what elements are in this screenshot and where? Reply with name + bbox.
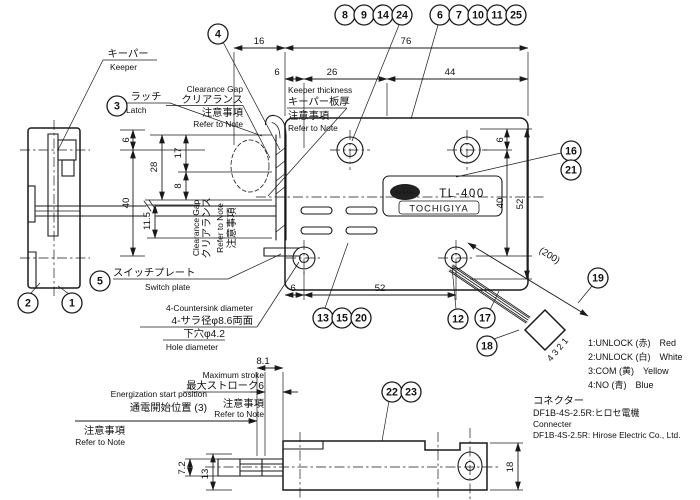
balloon-3: 3 — [107, 96, 127, 116]
balloon-13-label: 13 — [317, 313, 329, 325]
switch-plate-en: Switch plate — [145, 282, 190, 292]
dim-16: 16 — [254, 36, 265, 47]
balloon-16: 16 — [561, 141, 581, 161]
balloon-24-label: 24 — [396, 10, 408, 22]
balloon-6-label: 6 — [437, 10, 443, 22]
slots — [301, 207, 377, 234]
nameplate: TOCHIGIYA TL-400 TOCHIGIYA — [383, 176, 502, 216]
keeper-thickness-note: Keeper thickness キーパー板厚 注意事項 Refer to No… — [268, 85, 352, 196]
pilot-hole-jp: 下穴φ4.2 — [183, 327, 225, 340]
balloon-4-label: 4 — [215, 29, 221, 41]
clearance-note-jp: 注意事項 — [202, 106, 244, 119]
clearance-gap-vertical-jp: クリアランス — [201, 197, 213, 259]
balloon-14: 14 — [373, 5, 393, 25]
wire-3-label: 3:COM (黄) Yellow — [588, 365, 669, 376]
balloon-15-label: 15 — [336, 313, 348, 325]
balloon-18: 18 — [477, 336, 497, 356]
brand-logo-text: TOCHIGIYA — [395, 191, 415, 195]
wire-1-label: 1:UNLOCK (赤) Red — [588, 338, 676, 348]
balloon-2: 2 — [18, 293, 38, 313]
keeper-label-en: Keeper — [110, 62, 137, 72]
balloon-15: 15 — [332, 308, 352, 328]
dim-200: (200) — [537, 245, 562, 266]
clearance-note-en: Refer to Note — [193, 119, 243, 129]
balloon-8: 8 — [335, 5, 355, 25]
dim-8-1: 8.1 — [256, 356, 269, 367]
balloon-5-label: 5 — [97, 276, 103, 288]
balloon-16-label: 16 — [565, 146, 577, 158]
connector-model-jp: DF1B-4S-2.5R:ヒロセ電機 — [533, 407, 640, 418]
balloon-9-label: 9 — [361, 10, 367, 22]
drawing-page: TOCHIGIYA TL-400 TOCHIGIYA 4 3 — [0, 0, 700, 500]
countersink-jp: 4-サラ径φ8.6両面 — [171, 314, 253, 327]
energization-note-en: Refer to Note — [75, 437, 125, 447]
dim-17: 17 — [173, 148, 184, 159]
balloon-22-label: 22 — [386, 387, 398, 399]
balloon-10: 10 — [468, 5, 488, 25]
max-stroke-note-en: Refer to Note — [214, 409, 264, 419]
dim-6-right: 6 — [495, 137, 506, 142]
balloon-17: 17 — [475, 308, 495, 328]
dim-11-5: 11.5 — [142, 212, 153, 230]
balloon-14-label: 14 — [377, 10, 389, 22]
connector-note: コネクター DF1B-4S-2.5R:ヒロセ電機 Connecter DF1B-… — [533, 395, 681, 440]
balloon-13: 13 — [313, 308, 333, 328]
connector-pin-numbers: 4 3 2 1 — [545, 336, 570, 364]
balloon-20: 20 — [351, 308, 371, 328]
dim-40-right: 40 — [495, 198, 506, 209]
latch-and-keeper — [231, 115, 286, 240]
connector-en: Connecter — [533, 419, 572, 429]
balloon-5: 5 — [90, 271, 110, 291]
balloon-22: 22 — [382, 382, 402, 402]
mounting-hole-top-right — [447, 130, 487, 170]
hole-diameter-en: Hole diameter — [166, 342, 218, 352]
switch-plate-label: スイッチプレート Switch plate — [113, 254, 281, 292]
dim-18: 18 — [505, 462, 516, 473]
balloon-4: 4 — [208, 24, 228, 44]
bottom-view — [205, 428, 500, 500]
balloon-19: 19 — [588, 268, 608, 288]
connector-model-en: DF1B-4S-2.5R: Hirose Electric Co., Ltd. — [533, 430, 681, 440]
dim-13: 13 — [200, 469, 211, 480]
balloon-20-label: 20 — [355, 313, 367, 325]
note-vertical-en: Refer to Note — [215, 203, 225, 253]
balloon-21: 21 — [561, 160, 581, 180]
plunger — [218, 459, 283, 476]
keeper-label-jp: キーパー — [107, 48, 148, 60]
latch-phantom-position — [231, 140, 269, 192]
balloon-1-label: 1 — [69, 298, 75, 310]
balloon-8-label: 8 — [342, 10, 348, 22]
dim-76: 76 — [401, 36, 412, 47]
side-view — [20, 120, 90, 296]
balloon-1: 1 — [62, 293, 82, 313]
connector-jp: コネクター — [533, 395, 584, 407]
keeper-thickness-en: Keeper thickness — [288, 85, 352, 95]
wire-4-label: 4:NO (青) Blue — [588, 379, 654, 390]
balloon-9: 9 — [354, 5, 374, 25]
wire-legend: 1:UNLOCK (赤) Red 2:UNLOCK (白) White 3:CO… — [588, 338, 683, 390]
balloon-11-label: 11 — [491, 10, 502, 22]
energization-en: Energization start position — [111, 389, 208, 399]
dim-6-top: 6 — [274, 67, 279, 78]
balloon-11: 11 — [487, 5, 507, 25]
energization-note: Energization start position 通電開始位置 (3) 注… — [75, 389, 207, 447]
dim-52-bottom: 52 — [375, 283, 386, 294]
technical-drawing-canvas: TOCHIGIYA TL-400 TOCHIGIYA 4 3 — [0, 0, 700, 500]
clearance-gap-vertical-en: Clearance Gap — [191, 199, 201, 256]
wire-2-label: 2:UNLOCK (白) White — [588, 351, 683, 362]
keeper-thickness-jp: キーパー板厚 — [288, 95, 350, 108]
balloon-21-label: 21 — [565, 165, 577, 177]
dim-6-bottom: 6 — [290, 283, 295, 294]
dim-44: 44 — [445, 67, 456, 78]
dim-28: 28 — [149, 162, 160, 173]
dim-8: 8 — [173, 183, 184, 188]
dim-6-left: 6 — [121, 137, 132, 142]
dim-7-2: 7.2 — [177, 461, 188, 474]
balloon-7: 7 — [449, 5, 469, 25]
keeper-thickness-note-en: Refer to Note — [288, 123, 338, 133]
balloon-24: 24 — [392, 5, 412, 25]
clearance-gap-note-top: Clearance Gap クリアランス 注意事項 Refer to Note — [166, 84, 270, 158]
balloon-7-label: 7 — [456, 10, 462, 22]
switch-plate-jp: スイッチプレート — [113, 267, 195, 279]
latch-label-en: Latch — [126, 105, 147, 115]
dim-40-left: 40 — [121, 198, 132, 209]
clearance-gap-jp: クリアランス — [181, 94, 243, 106]
brand-name: TOCHIGIYA — [409, 204, 468, 214]
balloon-23: 23 — [401, 382, 421, 402]
latch-label-jp: ラッチ — [131, 91, 162, 103]
balloon-17-label: 17 — [479, 313, 491, 325]
keeper-plate-bar — [80, 200, 276, 216]
max-stroke-en: Maximum stroke — [203, 370, 265, 380]
balloon-25: 25 — [506, 5, 526, 25]
balloon-2-label: 2 — [25, 298, 31, 310]
balloon-6: 6 — [430, 5, 450, 25]
keeper-thickness-note-jp: 注意事項 — [288, 109, 330, 122]
balloon-12: 12 — [448, 309, 468, 329]
note-vertical-jp: 注意事項 — [225, 207, 238, 249]
balloon-25-label: 25 — [510, 10, 522, 22]
connector-plug: 4 3 2 1 — [525, 310, 570, 363]
balloon-23-label: 23 — [405, 387, 417, 399]
dim-52-right: 52 — [515, 199, 526, 210]
balloon-12-label: 12 — [452, 314, 464, 326]
dim-26: 26 — [327, 67, 338, 78]
balloon-19-label: 19 — [592, 273, 604, 285]
model-number: TL-400 — [439, 188, 484, 200]
balloon-18-label: 18 — [481, 341, 493, 353]
countersink-en: 4-Countersink diameter — [166, 303, 253, 313]
clearance-gap-en: Clearance Gap — [187, 84, 244, 94]
energization-jp: 通電開始位置 (3) — [130, 401, 207, 414]
balloon-3-label: 3 — [114, 101, 120, 113]
balloon-10-label: 10 — [472, 10, 484, 22]
mounting-hole-top-left — [330, 130, 370, 170]
energization-note-jp: 注意事項 — [84, 424, 126, 437]
